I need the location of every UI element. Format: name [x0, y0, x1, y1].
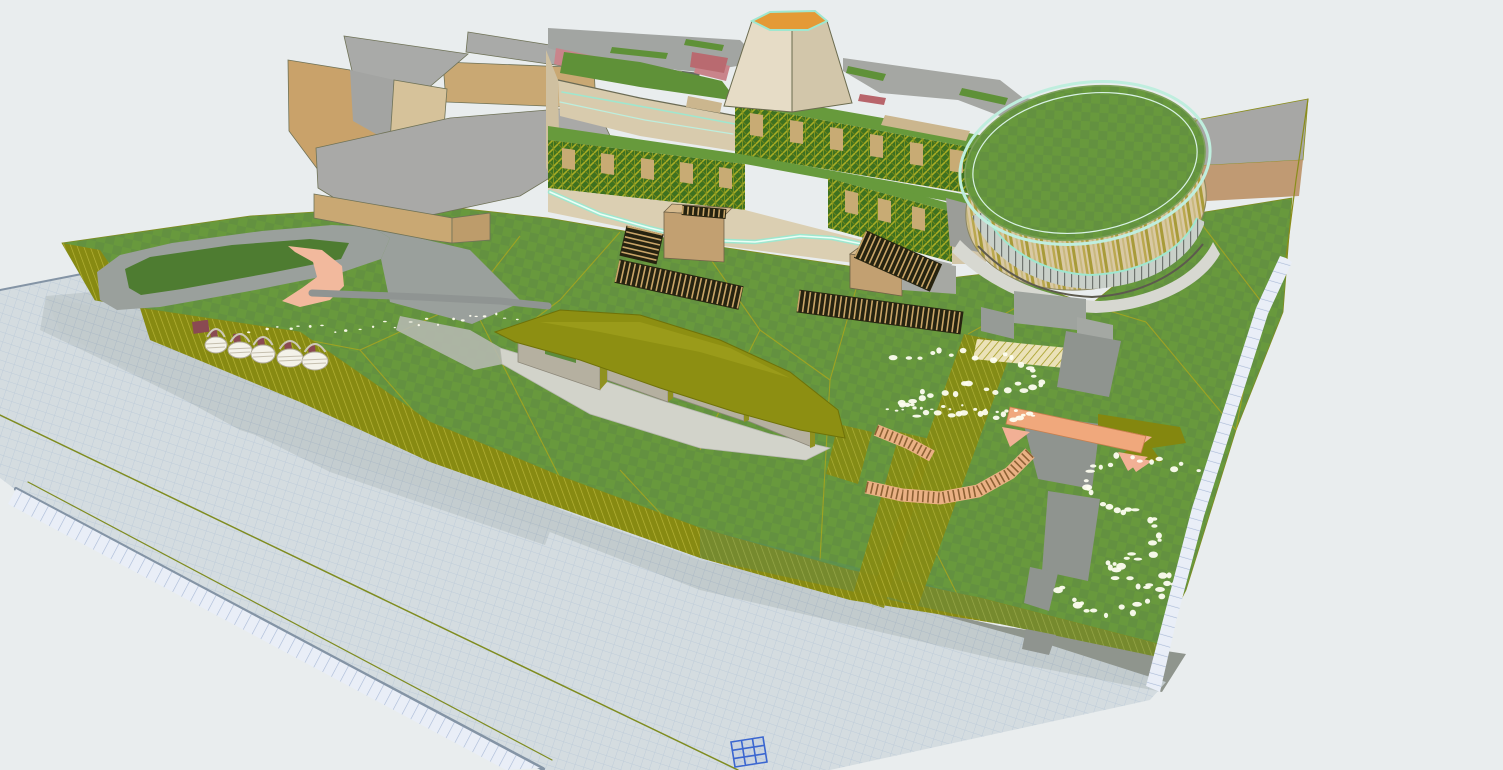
stone-trail-lower-s-stone: [1073, 602, 1083, 609]
planter-barrel: [251, 345, 275, 363]
stone-trail-upper-s-stone: [910, 403, 915, 406]
flower-sparkle-trail-stone: [469, 315, 471, 317]
flower-sparkle-trail-stone: [483, 315, 487, 317]
flower-sparkle-trail-stone: [359, 329, 362, 330]
massing-front-tan-b: [452, 213, 490, 243]
stone-trail-lower-s-stone: [1151, 517, 1157, 520]
stone-trail-lower-s-stone: [1156, 532, 1162, 538]
terrace-c2-window: [912, 206, 925, 231]
stone-trail-lower-s-stone: [1127, 552, 1136, 555]
stone-trail-boardwalk-stone: [996, 411, 999, 413]
terrace-c-window: [641, 158, 654, 180]
flower-sparkle-trail-stone: [495, 313, 497, 316]
stone-trail-upper-s-stone: [920, 389, 925, 395]
stone-trail-lower-s-stone: [1099, 465, 1103, 470]
stone-trail-boardwalk-stone: [949, 408, 952, 410]
stone-trail-lower-s-stone: [1090, 609, 1097, 613]
flower-sparkle-trail-stone: [383, 321, 387, 323]
flower-sparkle-trail-stone: [276, 326, 279, 328]
stone-trail-lower-s-stone: [1156, 457, 1163, 461]
stone-trail-upper-s-stone: [930, 351, 935, 355]
terrace-b-window: [870, 134, 883, 158]
stone-trail-upper-s-stone: [949, 354, 954, 357]
stone-trail-lower-s-stone: [1145, 583, 1153, 586]
flower-sparkle-trail-stone: [409, 321, 413, 322]
stone-trail-boardwalk-stone: [886, 408, 889, 410]
terrace-c-window: [562, 148, 575, 170]
scene-svg: [0, 0, 1503, 770]
stone-trail-lower-s-stone: [1113, 562, 1117, 566]
stone-trail-lower-s-stone: [1158, 539, 1162, 542]
stone-trail-boardwalk-stone: [1014, 409, 1018, 412]
stone-trail-upper-s-stone: [961, 381, 968, 386]
stone-trail-boardwalk-stone: [1004, 409, 1008, 412]
stone-trail-lower-s-stone: [1072, 598, 1077, 602]
stone-trail-lower-s-stone: [1085, 470, 1095, 473]
stone-trail-upper-s-stone: [1031, 375, 1037, 378]
stone-trail-lower-s-stone: [1124, 557, 1130, 560]
flower-sparkle-trail-stone: [290, 328, 293, 330]
flower-sparkle-trail-stone: [503, 318, 506, 319]
stone-trail-upper-s-stone: [948, 413, 956, 417]
flower-sparkle-trail-stone: [247, 331, 250, 333]
flower-sparkle-trail-stone: [437, 324, 439, 326]
stone-trail-upper-s-stone: [942, 390, 949, 396]
stone-trail-lower-s-stone: [1148, 540, 1157, 545]
planter-barrel: [228, 342, 252, 358]
stone-trail-lower-s-stone: [1149, 459, 1154, 465]
flower-sparkle-trail-stone: [452, 318, 455, 321]
stone-trail-upper-s-stone: [919, 395, 926, 401]
stone-trail-boardwalk-stone: [984, 409, 987, 411]
stone-trail-lower-s-stone: [1170, 466, 1178, 472]
stone-trail-lower-s-stone: [1179, 462, 1184, 466]
stone-trail-lower-s-stone: [1155, 587, 1165, 592]
stone-trail-lower-s-stone: [1131, 508, 1140, 511]
terrace-c-window: [680, 162, 693, 184]
flower-sparkle-trail-stone: [309, 325, 312, 328]
planter-barrel: [205, 337, 227, 353]
terrace-c-window: [601, 153, 614, 175]
stone-trail-upper-s-stone: [1028, 384, 1037, 390]
flower-sparkle-trail-stone: [394, 327, 396, 328]
stone-trail-boardwalk-stone: [961, 404, 963, 406]
flower-sparkle-trail-stone: [461, 319, 465, 321]
stone-trail-lower-s-stone: [1130, 610, 1136, 616]
terrace-b-window: [790, 120, 803, 144]
terrace-c-window: [719, 167, 732, 189]
stone-trail-upper-s-stone: [960, 348, 967, 353]
flower-sparkle-trail-stone: [418, 324, 420, 326]
stone-trail-upper-s-stone: [972, 356, 979, 361]
plaza-red-patch: [858, 94, 886, 105]
stone-trail-upper-s-stone: [934, 410, 942, 415]
terrace-c2-window: [845, 190, 858, 215]
stone-trail-upper-s-stone: [992, 390, 998, 395]
stone-trail-lower-s-stone: [1151, 524, 1157, 528]
stone-trail-lower-s-stone: [1104, 613, 1108, 618]
flower-sparkle-trail-stone: [334, 331, 336, 333]
terrace-b-window: [910, 142, 923, 166]
stone-trail-upper-s-stone: [1009, 355, 1013, 360]
scene-root: [0, 11, 1308, 770]
stone-trail-lower-s-stone: [1158, 594, 1165, 600]
stone-trail-lower-s-stone: [1197, 469, 1201, 472]
stone-trail-upper-s-stone: [1026, 366, 1035, 370]
stone-trail-lower-s-stone: [1132, 602, 1142, 607]
terrace-c2-window: [878, 198, 891, 223]
stone-trail-lower-s-stone: [1149, 552, 1158, 558]
stone-trail-upper-s-stone: [1020, 388, 1029, 393]
stone-trail-boardwalk-stone: [895, 410, 899, 412]
stone-trail-lower-s-stone: [1084, 609, 1090, 613]
stone-trail-lower-s-stone: [1111, 567, 1121, 572]
stone-trail-lower-s-stone: [1084, 479, 1089, 482]
stone-trail-lower-s-stone: [1108, 463, 1113, 467]
flower-sparkle-trail-stone: [372, 326, 374, 328]
stone-trail-lower-s-stone: [1053, 587, 1063, 593]
flower-sparkle-trail-stone: [266, 328, 269, 330]
stone-trail-lower-s-stone: [1113, 452, 1119, 459]
stone-trail-lower-s-stone: [1136, 584, 1141, 590]
planter-barrel: [302, 352, 328, 370]
planter-block: [192, 320, 210, 334]
tower-top-orange: [752, 11, 827, 30]
stone-trail-upper-s-stone: [1003, 352, 1008, 356]
stone-trail-boardwalk-stone: [1031, 415, 1035, 417]
stone-trail-boardwalk-stone: [901, 409, 904, 411]
stone-trail-upper-s-stone: [904, 403, 910, 407]
stone-trail-upper-s-stone: [984, 388, 990, 392]
stone-trail-upper-s-stone: [923, 410, 929, 415]
stone-trail-lower-s-stone: [1126, 576, 1133, 580]
stone-trail-upper-s-stone: [906, 356, 912, 360]
stone-trail-upper-s-stone: [936, 347, 941, 353]
terrace-b-window: [750, 113, 763, 137]
stone-trail-lower-s-stone: [1137, 460, 1143, 463]
stone-trail-upper-s-stone: [908, 399, 917, 404]
planter-barrel: [277, 349, 303, 367]
stone-trail-lower-s-stone: [1130, 455, 1135, 459]
stone-trail-upper-s-stone: [993, 416, 1000, 420]
stone-trail-lower-s-stone: [1119, 604, 1125, 609]
stone-trail-lower-s-stone: [1158, 572, 1167, 578]
stone-trail-boardwalk-stone: [973, 408, 977, 411]
flower-sparkle-trail-stone: [475, 316, 478, 317]
stone-trail-boardwalk-stone: [941, 405, 946, 408]
stone-trail-lower-s-stone: [1163, 581, 1171, 586]
stone-trail-upper-s-stone: [927, 393, 934, 398]
stone-trail-lower-s-stone: [1167, 572, 1172, 578]
stone-trail-lower-s-stone: [1106, 504, 1114, 510]
stair-block-a-front: [664, 212, 724, 262]
stone-trail-lower-s-stone: [1134, 558, 1142, 561]
stone-trail-lower-s-stone: [1100, 502, 1106, 506]
stone-trail-boardwalk-stone: [930, 409, 934, 411]
stone-trail-lower-s-stone: [1111, 576, 1120, 580]
grid-axes-marker: [731, 737, 767, 767]
stone-trail-upper-s-stone: [917, 357, 922, 360]
flower-sparkle-trail-stone: [425, 318, 428, 320]
stone-trail-upper-s-stone: [1039, 383, 1044, 388]
flower-sparkle-trail-stone: [320, 325, 324, 327]
stone-trail-boardwalk-stone: [920, 407, 923, 410]
stone-trail-lower-s-stone: [1090, 464, 1096, 467]
stone-trail-lower-s-stone: [1124, 507, 1132, 511]
flower-sparkle-trail-stone: [296, 326, 300, 327]
stone-trail-upper-s-stone: [1018, 362, 1024, 368]
stone-trail-lower-s-stone: [1089, 490, 1094, 496]
flower-sparkle-trail-stone: [516, 319, 519, 320]
stone-trail-upper-s-stone: [1015, 382, 1022, 386]
stone-trail-lower-s-stone: [1114, 507, 1121, 513]
stone-trail-upper-s-stone: [990, 357, 997, 363]
stone-trail-upper-s-stone: [960, 410, 968, 416]
stone-trail-upper-s-stone: [912, 415, 921, 418]
flower-sparkle-trail-stone: [344, 329, 347, 332]
stone-trail-upper-s-stone: [889, 355, 898, 360]
model-viewport[interactable]: [0, 0, 1503, 770]
terrace-b-window: [830, 127, 843, 151]
stone-trail-lower-s-stone: [1145, 599, 1150, 604]
stone-trail-upper-s-stone: [953, 391, 958, 397]
stone-trail-upper-s-stone: [1004, 387, 1012, 393]
stone-trail-boardwalk-stone: [912, 406, 916, 409]
stone-trail-boardwalk-stone: [1021, 414, 1026, 417]
